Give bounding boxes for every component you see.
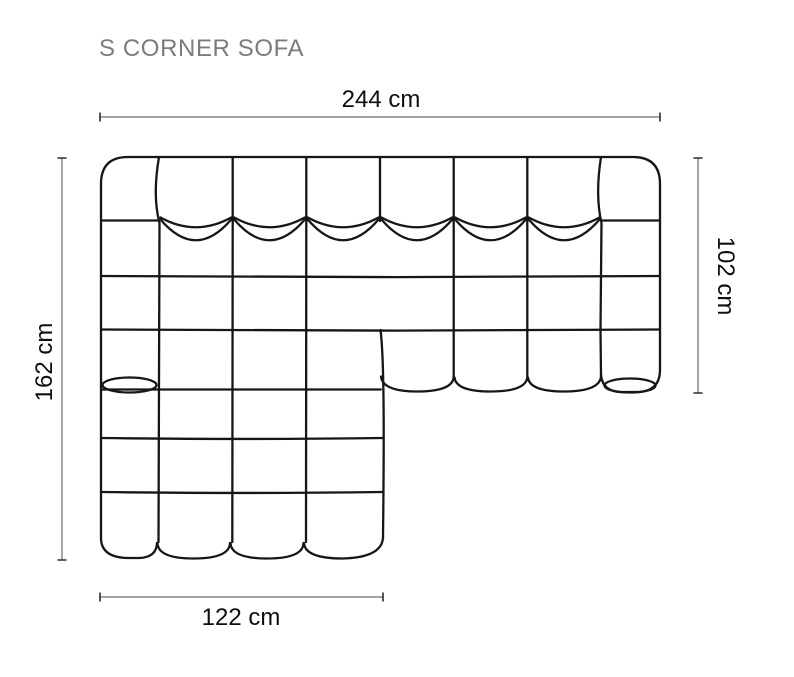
right-armrest-cap [605,379,656,393]
drawing-page: S CORNER SOFA [0,0,794,677]
seat-seam-row-1 [101,276,660,277]
backrest-scallops-lower [161,220,600,241]
chaise-seam-rows [101,390,383,493]
backrest-cushion-dividers [233,157,528,221]
dimension-label-top: 244 cm [342,87,421,113]
right-armrest-inner-edge [598,157,601,377]
right-seat-front-bulges [381,377,601,392]
dimension-top [100,113,660,122]
dimension-label-right: 102 cm [712,237,738,316]
dimension-left [58,158,67,560]
left-armrest-inner-edge [156,157,160,542]
dimension-label-bottom: 122 cm [202,605,281,631]
chaise-front-left-corner [101,538,157,558]
chaise-right-edge [381,330,384,538]
sofa-body [101,157,660,559]
dimension-label-left: 162 cm [32,323,58,402]
dimension-right [694,158,703,393]
chaise-front-bulges [158,538,384,559]
dimension-bottom [100,593,383,602]
